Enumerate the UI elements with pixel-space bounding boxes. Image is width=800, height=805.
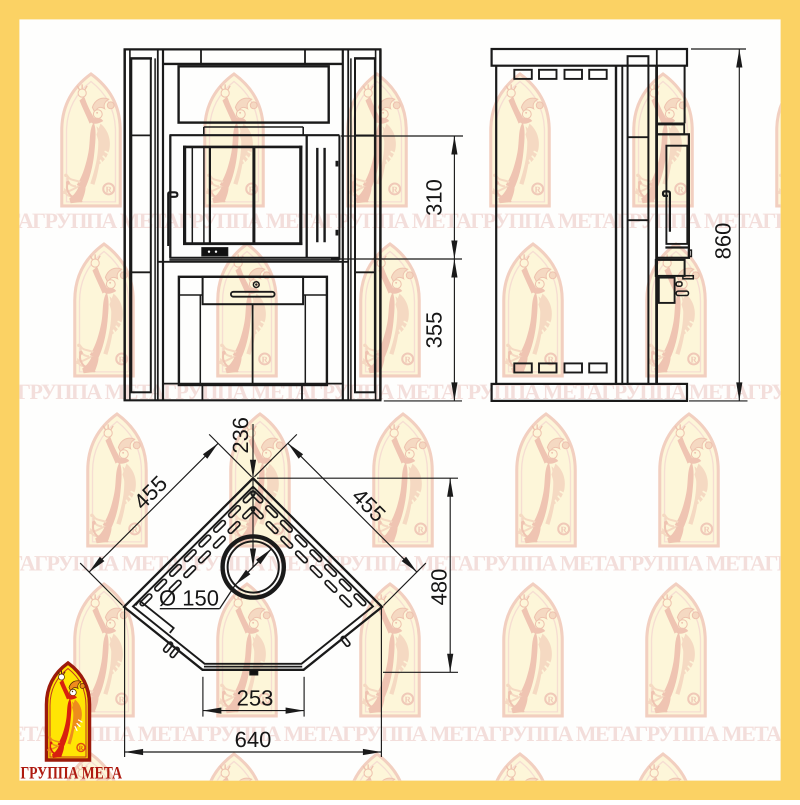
svg-text:R: R — [534, 184, 541, 194]
svg-text:R: R — [417, 524, 424, 534]
svg-text:R: R — [677, 184, 684, 194]
svg-text:R: R — [703, 524, 710, 534]
svg-text:640: 640 — [235, 727, 272, 752]
svg-text:ГРУППА МЕТАГРУППА МЕТАГРУППА М: ГРУППА МЕТАГРУППА МЕТАГРУППА МЕТАГРУППА … — [0, 208, 800, 233]
svg-text:253: 253 — [237, 686, 274, 711]
svg-text:R: R — [690, 694, 697, 704]
svg-text:R: R — [547, 694, 554, 704]
svg-text:ГРУППА МЕТАГРУППА МЕТАГРУППА М: ГРУППА МЕТАГРУППА МЕТАГРУППА МЕТАГРУППА … — [0, 551, 800, 576]
svg-text:236: 236 — [228, 417, 253, 454]
svg-text:860: 860 — [711, 223, 736, 260]
svg-text:355: 355 — [422, 312, 447, 349]
svg-text:R: R — [391, 184, 398, 194]
svg-text:ГРУППА МЕТАГРУППА МЕТАГРУППА М: ГРУППА МЕТАГРУППА МЕТАГРУППА МЕТАГРУППА … — [0, 721, 800, 746]
svg-text:R: R — [404, 694, 411, 704]
svg-text:R: R — [261, 354, 268, 364]
svg-text:R: R — [79, 744, 84, 752]
svg-text:480: 480 — [426, 569, 451, 606]
svg-text:310: 310 — [422, 179, 447, 216]
svg-text:R: R — [105, 184, 112, 194]
svg-text:R: R — [560, 524, 567, 534]
svg-text:R: R — [690, 354, 697, 364]
svg-text:Ø 150: Ø 150 — [159, 586, 219, 611]
svg-text:ГРУППА МЕТА: ГРУППА МЕТА — [21, 763, 123, 783]
svg-text:R: R — [404, 354, 411, 364]
